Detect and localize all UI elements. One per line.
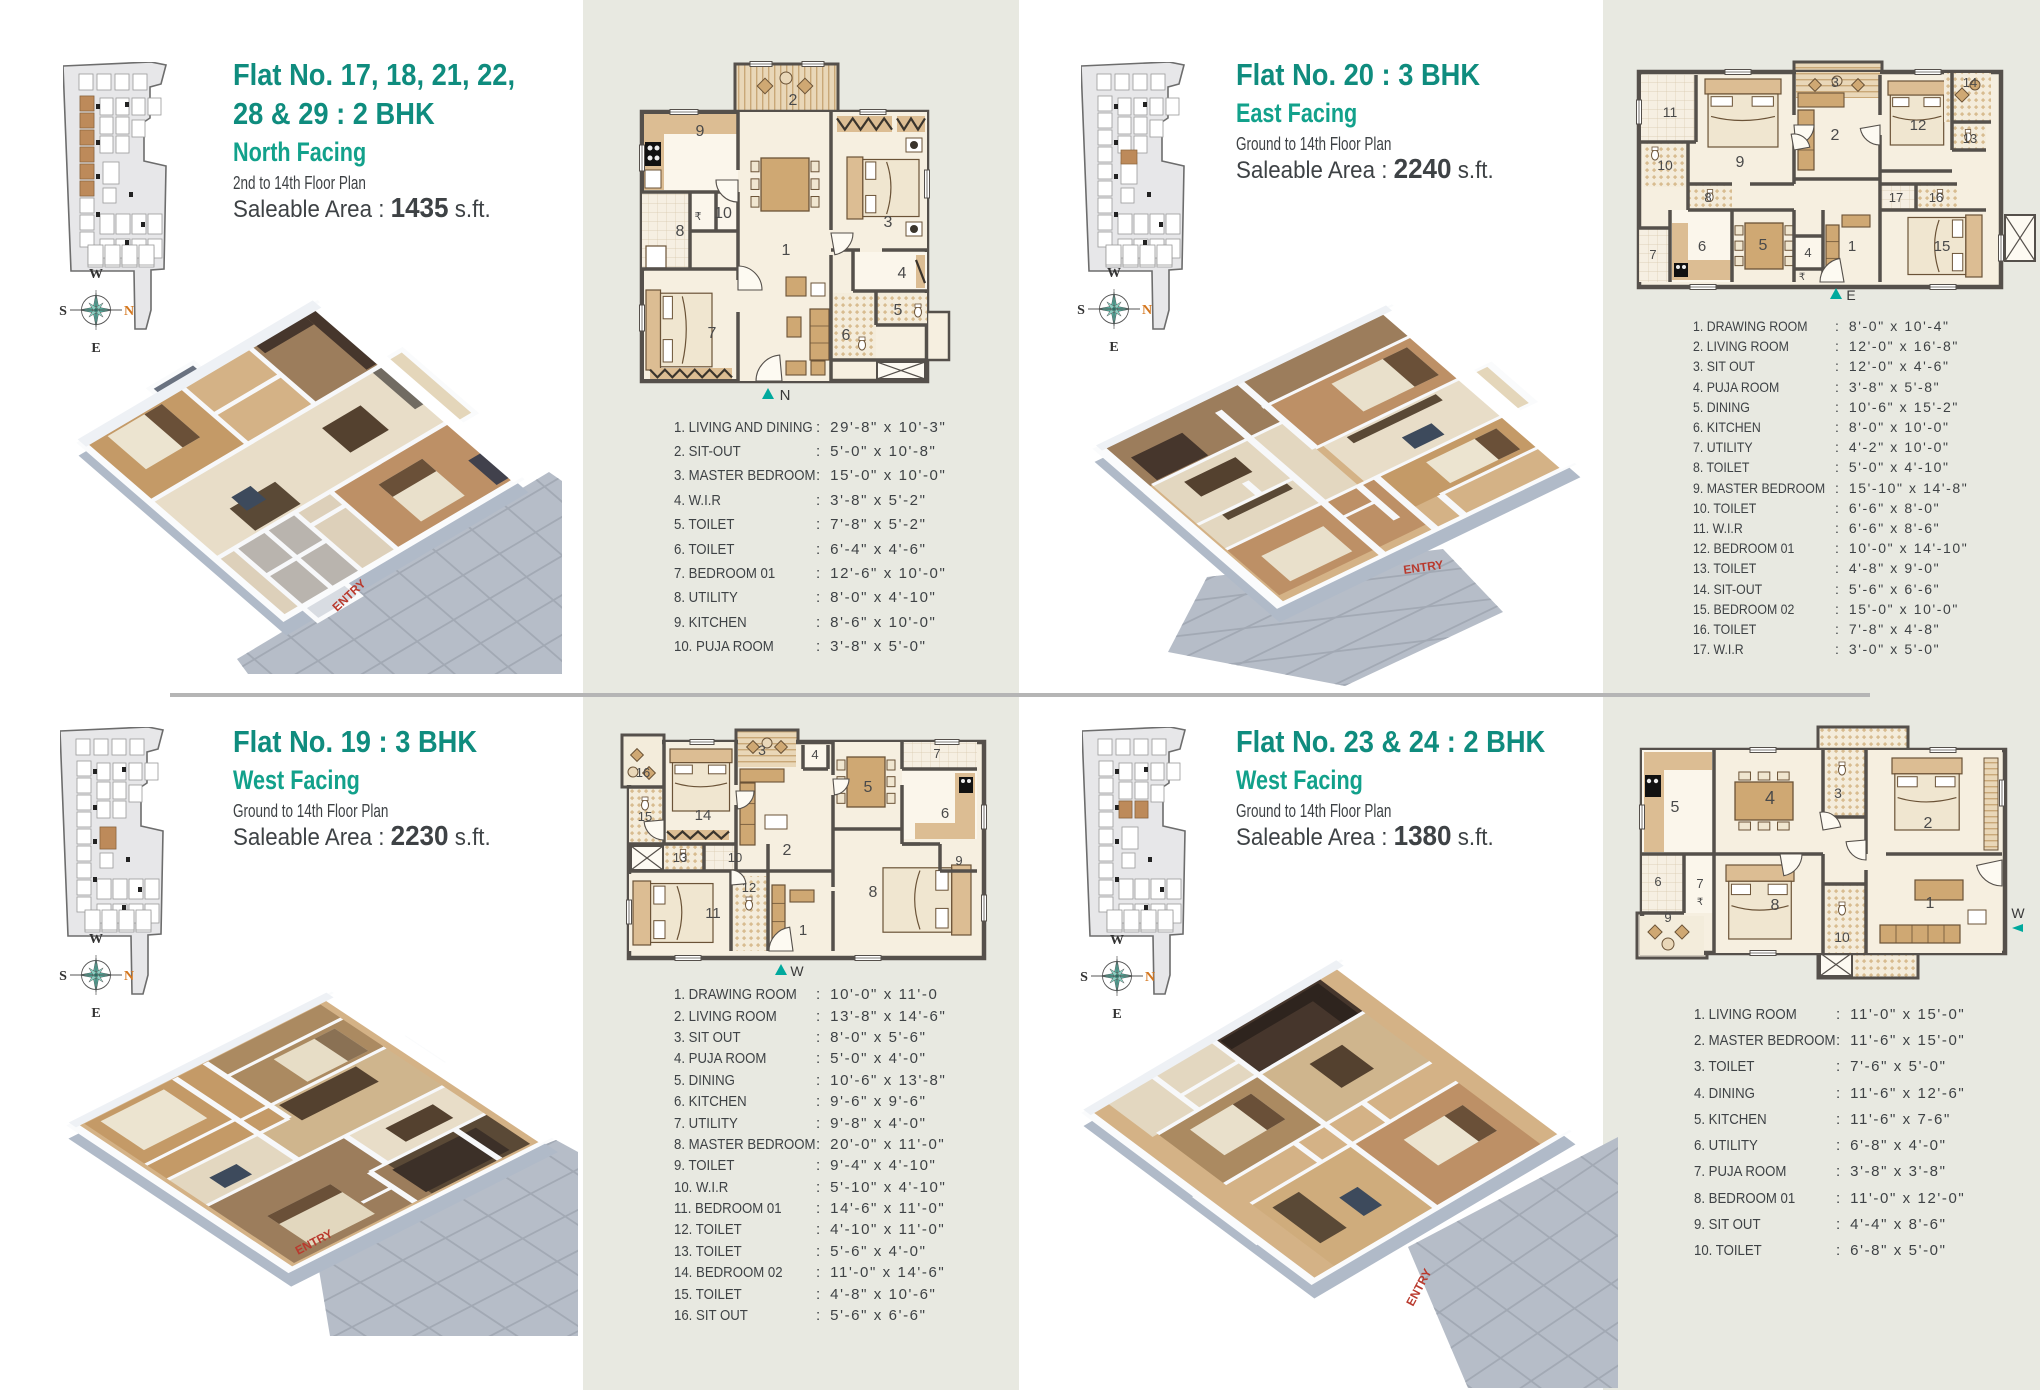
- svg-text:4: 4: [898, 265, 907, 282]
- svg-text:11: 11: [1663, 104, 1678, 120]
- svg-text:W: W: [1107, 266, 1121, 281]
- svg-text:3: 3: [1831, 74, 1839, 90]
- svg-text:9: 9: [955, 853, 962, 868]
- svg-text:9: 9: [696, 123, 705, 140]
- svg-text:8: 8: [1704, 190, 1711, 205]
- svg-text:9: 9: [1736, 154, 1745, 171]
- svg-text:1: 1: [1848, 238, 1856, 255]
- svg-text:W: W: [2011, 905, 2025, 921]
- svg-text:10: 10: [1657, 157, 1673, 173]
- svg-text:4: 4: [1765, 788, 1775, 808]
- svg-text:W: W: [89, 267, 103, 282]
- svg-text:17: 17: [1889, 190, 1903, 205]
- svg-text:11: 11: [705, 905, 721, 922]
- svg-text:N: N: [780, 387, 791, 404]
- svg-text:8: 8: [1771, 897, 1780, 914]
- svg-text:3: 3: [1834, 785, 1842, 801]
- svg-text:10: 10: [1834, 929, 1850, 945]
- svg-text:4: 4: [811, 747, 818, 762]
- svg-text:10: 10: [728, 850, 742, 865]
- svg-text:6: 6: [1654, 874, 1661, 889]
- svg-text:1: 1: [1926, 895, 1935, 912]
- svg-text:16: 16: [636, 765, 650, 780]
- svg-text:7: 7: [1696, 876, 1703, 891]
- svg-text:₹: ₹: [1799, 272, 1805, 283]
- svg-text:4: 4: [1804, 245, 1811, 260]
- svg-text:16: 16: [1929, 190, 1943, 205]
- svg-text:2: 2: [789, 92, 798, 109]
- svg-text:2: 2: [1924, 815, 1933, 832]
- svg-text:E: E: [1846, 287, 1855, 303]
- svg-text:N: N: [124, 969, 134, 984]
- svg-text:14: 14: [1963, 75, 1977, 90]
- svg-text:W: W: [790, 963, 804, 979]
- svg-text:13: 13: [673, 850, 687, 865]
- svg-text:6: 6: [1698, 238, 1706, 255]
- svg-text:5: 5: [894, 302, 903, 319]
- svg-text:8: 8: [869, 884, 878, 901]
- svg-text:12: 12: [742, 880, 756, 895]
- svg-text:1: 1: [782, 242, 791, 259]
- svg-text:₹: ₹: [1697, 897, 1703, 908]
- svg-text:15: 15: [1934, 238, 1951, 255]
- svg-text:15: 15: [638, 809, 652, 824]
- svg-text:7: 7: [1649, 247, 1656, 262]
- svg-text:5: 5: [1671, 799, 1680, 816]
- svg-text:2: 2: [1831, 127, 1840, 144]
- svg-text:3: 3: [758, 742, 766, 758]
- svg-text:6: 6: [842, 327, 851, 344]
- svg-text:S: S: [59, 969, 67, 984]
- svg-text:3: 3: [884, 214, 893, 231]
- svg-text:₹: ₹: [695, 211, 702, 223]
- svg-text:14: 14: [695, 807, 712, 824]
- svg-text:6: 6: [941, 805, 949, 822]
- svg-text:10: 10: [714, 205, 732, 222]
- svg-text:12: 12: [1910, 117, 1927, 134]
- svg-text:5: 5: [1759, 237, 1768, 254]
- svg-text:W: W: [1110, 933, 1124, 948]
- svg-text:1: 1: [799, 922, 807, 939]
- svg-text:2: 2: [783, 842, 792, 859]
- svg-text:W: W: [89, 932, 103, 947]
- svg-text:8: 8: [676, 223, 685, 240]
- svg-text:13: 13: [1963, 131, 1977, 146]
- svg-text:5: 5: [864, 779, 873, 796]
- svg-text:7: 7: [933, 746, 940, 761]
- svg-text:9: 9: [1664, 910, 1671, 925]
- svg-text:7: 7: [708, 325, 717, 342]
